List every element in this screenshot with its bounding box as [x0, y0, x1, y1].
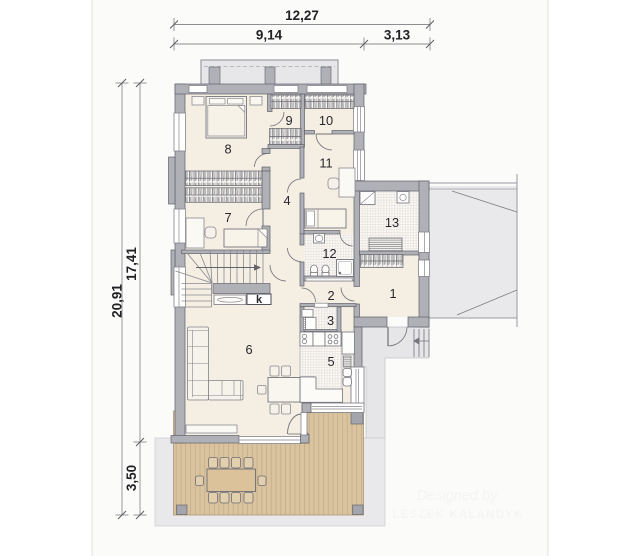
svg-text:20,91: 20,91: [110, 284, 125, 318]
svg-text:5: 5: [327, 354, 334, 369]
svg-text:17,41: 17,41: [124, 247, 139, 281]
svg-text:8: 8: [224, 142, 231, 157]
svg-text:13: 13: [385, 215, 399, 230]
svg-text:10: 10: [319, 113, 333, 128]
svg-text:12: 12: [322, 246, 336, 261]
svg-text:Designed by: Designed by: [417, 488, 498, 504]
svg-text:3: 3: [327, 313, 334, 328]
svg-text:9,14: 9,14: [256, 28, 283, 43]
svg-text:1: 1: [389, 286, 396, 301]
svg-text:k: k: [256, 294, 263, 306]
svg-text:2: 2: [327, 288, 334, 303]
svg-text:11: 11: [319, 156, 332, 171]
svg-text:LESZEK KALANDYK: LESZEK KALANDYK: [392, 509, 523, 521]
svg-text:7: 7: [224, 210, 231, 225]
svg-text:3,13: 3,13: [384, 28, 411, 43]
svg-text:4: 4: [283, 193, 290, 208]
svg-text:6: 6: [245, 342, 252, 357]
svg-text:3,50: 3,50: [124, 465, 139, 491]
svg-text:12,27: 12,27: [285, 8, 319, 23]
svg-text:9: 9: [285, 113, 292, 128]
